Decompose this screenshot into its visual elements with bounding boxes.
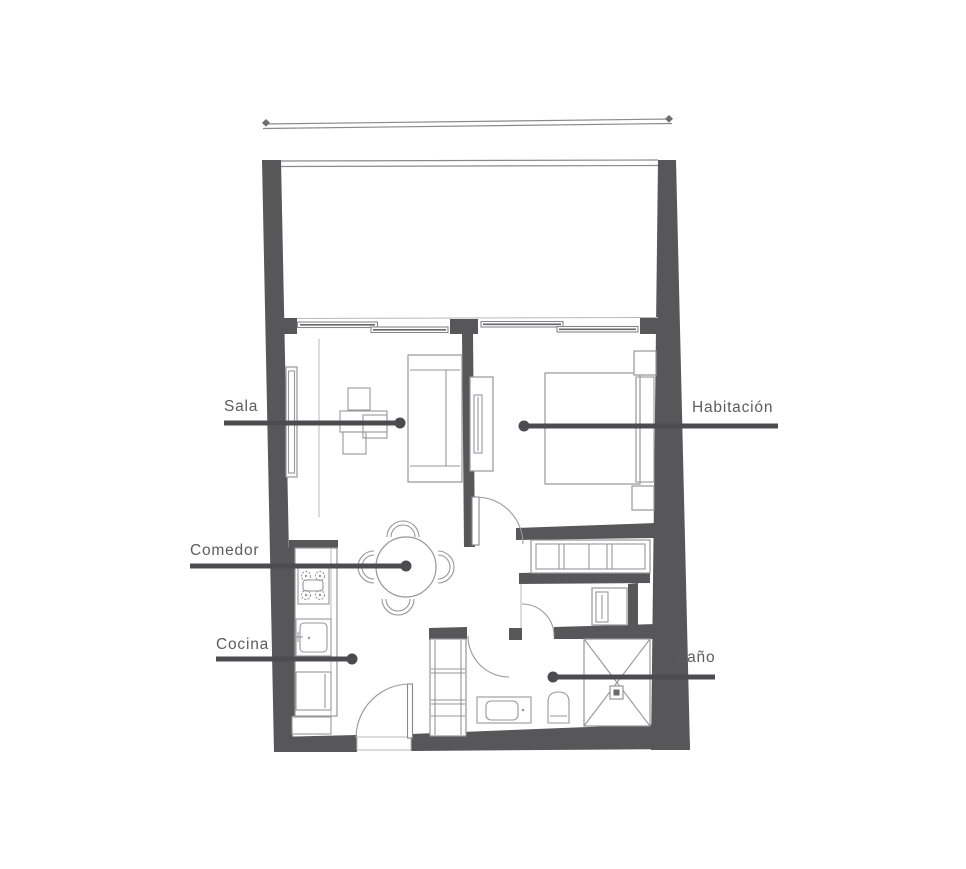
cocina-leader-dot: [347, 654, 358, 665]
wardrobe-top-wall: [516, 523, 657, 540]
window-pier-right: [640, 318, 669, 334]
sala-furniture: [286, 339, 462, 517]
nightstand-bottom: [632, 486, 654, 510]
toilet: [548, 692, 569, 723]
habitacion-closet: [470, 377, 493, 471]
shower: [584, 639, 650, 726]
dining-chair-south: [382, 599, 414, 615]
floor-plan-drawing: [0, 0, 966, 869]
label-habitacion: Habitación: [692, 400, 773, 416]
label-sala: Sala: [224, 399, 258, 415]
dining-chair-north: [387, 521, 419, 537]
laundry-closet: [592, 588, 627, 625]
habitacion-furniture: [470, 351, 656, 510]
label-comedor: Comedor: [190, 543, 259, 559]
dimension-end-marker-right: [665, 115, 673, 123]
dining-chair-east: [438, 551, 454, 583]
balcony-top-wall-inner: [281, 166, 658, 167]
label-bano: Baño: [676, 650, 715, 666]
window-pier-left: [268, 318, 297, 334]
window-wall: [268, 318, 669, 335]
label-cocina: Cocina: [216, 637, 269, 653]
sliding-window-right: [481, 322, 638, 333]
bano-leader-dot: [548, 672, 559, 683]
sala-leader-dot: [395, 418, 406, 429]
sliding-window-left: [298, 322, 449, 333]
bathroom: [477, 639, 650, 726]
bathroom-top-wall: [554, 624, 657, 639]
dimension-line: [262, 115, 673, 129]
washing-machine: [592, 588, 627, 625]
sofa: [408, 355, 462, 482]
dimension-end-marker-left: [262, 119, 270, 127]
nightstand-top: [634, 351, 656, 375]
sink-vanity: [477, 697, 531, 723]
laundry-door: [522, 604, 554, 636]
bano-door: [468, 636, 509, 677]
entry-closet: [430, 639, 466, 736]
comedor-leader-dot: [401, 561, 412, 572]
window-pier-center: [450, 319, 478, 334]
floor-plan-canvas: Sala Habitación Comedor Cocina Baño: [0, 0, 966, 869]
laundry-right-wall: [628, 583, 638, 628]
entry-door: [356, 684, 413, 750]
entry-closet-top-stub: [429, 627, 467, 640]
hall-wardrobe: [531, 540, 650, 573]
room-balcony: [282, 167, 657, 319]
bathroom-door-jamb: [509, 628, 522, 640]
kitchen-lower-cabinet: [292, 717, 331, 734]
kitchen: [292, 548, 337, 734]
kitchen-top-bar: [289, 540, 338, 548]
habitacion-leader-dot: [519, 421, 530, 432]
bottom-wall-left: [274, 735, 357, 752]
sala-leader: [224, 418, 406, 429]
balcony-top-wall-outer: [281, 160, 658, 161]
habitacion-door: [472, 497, 523, 545]
